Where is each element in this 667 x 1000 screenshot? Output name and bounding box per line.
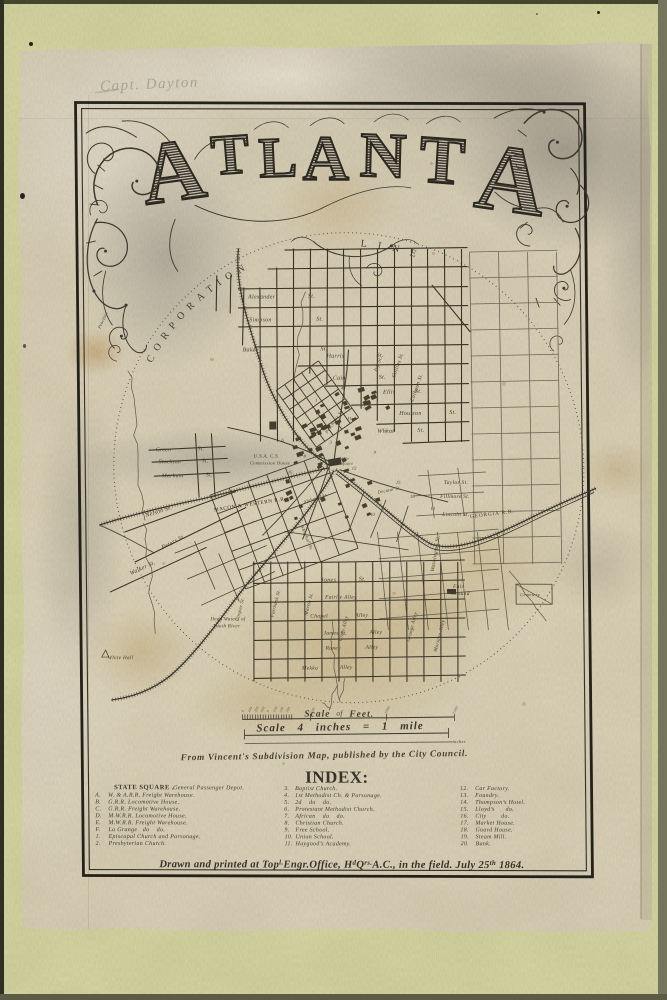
svg-text:Scale: Scale (304, 710, 330, 720)
svg-text:Alley: Alley (365, 645, 379, 651)
svg-text:2d do do.: 2d do do. (295, 800, 331, 806)
svg-text:Bank.: Bank. (476, 841, 491, 847)
svg-text:200: 200 (278, 706, 284, 713)
svg-text:9.: 9. (284, 827, 289, 833)
svg-text:3.: 3. (283, 786, 289, 792)
svg-text:Free School.: Free School. (294, 827, 329, 833)
svg-text:Houston: Houston (398, 411, 421, 417)
svg-text:5.: 5. (284, 800, 289, 806)
svg-text:15: 15 (396, 480, 401, 485)
svg-text:0: 0 (266, 709, 270, 713)
svg-text:Commission House: Commission House (250, 460, 290, 465)
svg-text:Lincoln St.: Lincoln St. (441, 512, 469, 518)
svg-text:Markum: Markum (161, 473, 184, 479)
svg-text:Decatur St.: Decatur St. (376, 485, 401, 495)
svg-text:Ellis: Ellis (382, 390, 396, 396)
svg-text:C.: C. (95, 806, 101, 812)
svg-text:G.R.R. Freight Warehouse.: G.R.R. Freight Warehouse. (108, 806, 180, 812)
svg-text:Gress Alley: Gress Alley (339, 615, 350, 642)
svg-text:Jones: Jones (321, 578, 337, 584)
svg-text:Raney: Raney (325, 646, 342, 652)
svg-text:L: L (258, 126, 299, 190)
svg-text:20.: 20. (461, 841, 469, 847)
svg-text:Fairlie Alley: Fairlie Alley (324, 595, 357, 601)
svg-text:St.: St. (321, 347, 328, 353)
svg-text:12: 12 (352, 466, 357, 471)
svg-text:6.: 6. (284, 807, 289, 813)
svg-text:Foundry.: Foundry. (474, 793, 499, 799)
svg-text:St.: St. (198, 446, 205, 452)
svg-text:African do do.: African do do. (294, 813, 345, 820)
svg-text:2.: 2. (96, 841, 101, 847)
svg-text:Stockton: Stockton (159, 459, 181, 465)
svg-text:11.: 11. (285, 841, 293, 847)
svg-text:Car Factory.: Car Factory. (475, 786, 510, 792)
svg-text:Chapel: Chapel (310, 614, 328, 620)
svg-text:B.: B. (95, 799, 101, 805)
svg-text:M.W.R.R. Locomotive House.: M.W.R.R. Locomotive House. (107, 813, 186, 819)
svg-text:A: A (302, 123, 349, 194)
svg-text:Alley: Alley (339, 665, 353, 671)
svg-text:La Grange do do.: La Grange do do. (107, 827, 165, 833)
svg-text:16.: 16. (460, 814, 468, 820)
svg-text:Alley: Alley (368, 630, 382, 636)
svg-text:4.: 4. (284, 793, 289, 799)
svg-text:Presbyterian Church.: Presbyterian Church. (108, 841, 167, 847)
svg-text:St.: St. (316, 317, 323, 323)
svg-text:inches: inches (453, 739, 466, 744)
svg-text:Fairbank St.: Fairbank St. (270, 589, 282, 619)
svg-text:Peters St.: Peters St. (160, 534, 187, 552)
svg-text:10.: 10. (285, 834, 293, 840)
svg-text:17.: 17. (460, 820, 468, 826)
svg-text:Guard House.: Guard House. (475, 827, 512, 833)
svg-text:GEORGIA R.R.: GEORGIA R.R. (470, 509, 515, 520)
svg-text:Mekko: Mekko (301, 666, 318, 672)
svg-text:Union School.: Union School. (296, 834, 334, 840)
svg-text:St.: St. (206, 472, 213, 478)
svg-text:A: A (470, 121, 553, 237)
svg-text:South River: South River (213, 624, 240, 629)
svg-text:16: 16 (288, 470, 293, 475)
svg-text:Episcopal Church and Parsonage: Episcopal Church and Parsonage. (108, 834, 201, 840)
svg-text:St.: St. (417, 428, 424, 434)
svg-text:7.: 7. (284, 814, 289, 820)
svg-text:A.: A. (94, 793, 101, 799)
svg-text:CORPORATION: CORPORATION (144, 260, 254, 365)
svg-text:Thompson’s Hotel.: Thompson’s Hotel. (475, 800, 525, 806)
svg-text:of: of (336, 709, 343, 718)
svg-text:Alexander: Alexander (247, 294, 276, 300)
svg-text:U.S.A. C.S.: U.S.A. C.S. (254, 454, 280, 459)
svg-text:STATE SQUARE ,: STATE SQUARE , (114, 784, 174, 791)
svg-text:Christian Church.: Christian Church. (295, 821, 344, 827)
svg-text:200: 200 (253, 706, 259, 713)
svg-text:3: 3 (329, 440, 332, 445)
svg-text:Lloyd’s do.: Lloyd’s do. (474, 807, 514, 813)
svg-text:D.: D. (94, 813, 101, 819)
svg-text:Market House.: Market House. (474, 821, 515, 827)
svg-text:15.: 15. (460, 807, 468, 813)
svg-text:A: A (134, 120, 211, 225)
svg-text:100: 100 (272, 706, 278, 713)
svg-text:1: 1 (315, 398, 317, 403)
svg-text:Protestant Methodist Church.: Protestant Methodist Church. (294, 807, 375, 813)
svg-text:Steam Mill.: Steam Mill. (476, 834, 507, 840)
svg-text:T: T (417, 120, 467, 199)
svg-text:G.R.R. Locomotive House.: G.R.R. Locomotive House. (108, 799, 179, 805)
svg-text:Alley: Alley (354, 613, 368, 619)
svg-text:Green: Green (156, 447, 172, 453)
svg-text:100: 100 (247, 706, 253, 713)
svg-text:MACON & WESTERN R.R.: MACON & WESTERN R.R. (214, 496, 287, 513)
svg-text:T: T (209, 122, 252, 187)
svg-text:13: 13 (430, 506, 435, 511)
svg-text:St.: St. (449, 410, 456, 416)
svg-text:1500: 1500 (452, 706, 459, 715)
svg-text:Drawn and printed at Topl.Engr: Drawn and printed at Topl.Engr.Office, H… (158, 858, 524, 871)
svg-text:18.: 18. (460, 827, 468, 833)
svg-text:Cemetery: Cemetery (520, 592, 541, 597)
svg-text:White Hall: White Hall (108, 655, 134, 661)
svg-text:0: 0 (241, 709, 245, 713)
svg-text:F.: F. (94, 827, 100, 833)
svg-text:Taylor St.: Taylor St. (444, 480, 468, 486)
svg-text:300: 300 (260, 706, 266, 713)
svg-text:From Vincent's Subdivision Map: From Vincent's Subdivision Map, publishe… (180, 748, 469, 762)
svg-text:12.: 12. (460, 786, 468, 792)
svg-text:Harris: Harris (326, 354, 345, 360)
svg-text:13.: 13. (460, 793, 468, 799)
svg-text:W. & A.R.R. Freight Warehouse.: W. & A.R.R. Freight Warehouse. (108, 793, 195, 799)
svg-text:Baptist Church.: Baptist Church. (295, 786, 337, 792)
svg-text:N: N (359, 119, 407, 192)
svg-text:INDEX:: INDEX: (305, 768, 369, 787)
svg-text:Simpson: Simpson (249, 317, 271, 323)
svg-text:Fillmore St.: Fillmore St. (439, 494, 470, 500)
svg-text:St.: St. (202, 458, 209, 464)
svg-text:10: 10 (370, 512, 375, 517)
svg-text:Haygood’s Academy.: Haygood’s Academy. (295, 841, 352, 847)
svg-text:300: 300 (285, 706, 291, 713)
svg-text:Baker: Baker (243, 347, 259, 353)
svg-text:1st Methodist Ch. & Parsonage.: 1st Methodist Ch. & Parsonage. (295, 793, 382, 799)
svg-text:Cain: Cain (333, 376, 346, 382)
svg-text:6: 6 (281, 438, 284, 443)
svg-text:1.: 1. (96, 834, 101, 840)
svg-text:St.: St. (359, 577, 366, 583)
svg-text:Scale 4 inches = 1 mile: Scale 4 inches = 1 mile (256, 720, 424, 734)
svg-text:Feet.: Feet. (348, 710, 374, 720)
svg-text:19.: 19. (461, 834, 469, 840)
svg-text:14.: 14. (460, 800, 468, 806)
svg-text:General Passenger Depot.: General Passenger Depot. (173, 785, 244, 791)
svg-text:11: 11 (347, 416, 351, 421)
svg-text:Proctors: Proctors (96, 311, 109, 331)
svg-text:8: 8 (304, 454, 307, 459)
svg-text:8.: 8. (284, 821, 289, 827)
svg-text:18: 18 (410, 494, 415, 499)
svg-text:1000: 1000 (384, 705, 391, 714)
svg-text:9: 9 (374, 450, 377, 455)
svg-text:St.: St. (379, 375, 386, 381)
svg-text:St.: St. (308, 294, 315, 300)
svg-text:City do.: City do. (475, 814, 509, 820)
svg-text:E.: E. (94, 820, 101, 826)
svg-text:Mariana Alley: Mariana Alley (434, 619, 447, 653)
svg-text:M.W.R.R. Freight Warehouse.: M.W.R.R. Freight Warehouse. (107, 820, 187, 826)
